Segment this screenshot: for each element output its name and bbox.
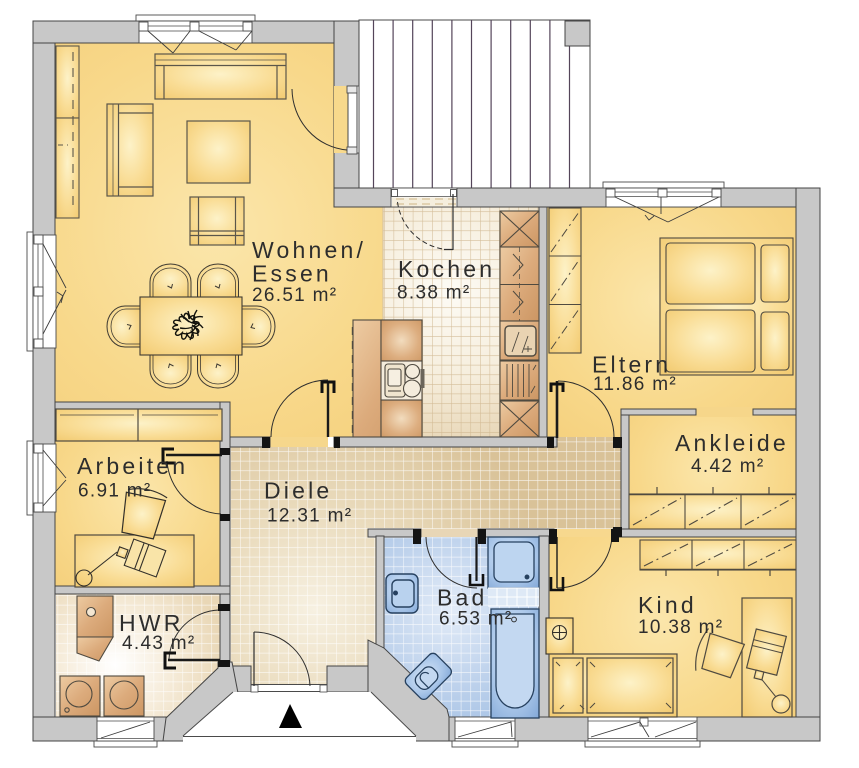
svg-text:Kind: Kind — [638, 592, 697, 618]
svg-text:6.91 m²: 6.91 m² — [78, 481, 152, 502]
svg-text:6.53 m²: 6.53 m² — [439, 609, 513, 630]
svg-text:Essen: Essen — [252, 261, 332, 287]
svg-text:Diele: Diele — [264, 478, 332, 504]
svg-text:12.31 m²: 12.31 m² — [267, 506, 352, 527]
svg-text:Kochen: Kochen — [398, 256, 495, 282]
svg-text:8.38 m²: 8.38 m² — [397, 283, 471, 304]
svg-text:26.51 m²: 26.51 m² — [252, 285, 337, 306]
svg-text:Wohnen/: Wohnen/ — [252, 237, 366, 263]
svg-text:4.43 m²: 4.43 m² — [122, 633, 196, 654]
svg-text:11.86 m²: 11.86 m² — [593, 374, 677, 395]
svg-text:Ankleide: Ankleide — [675, 430, 789, 456]
svg-text:4.42 m²: 4.42 m² — [691, 456, 765, 477]
svg-text:10.38 m²: 10.38 m² — [638, 617, 723, 638]
svg-text:Bad: Bad — [437, 585, 488, 611]
svg-text:Arbeiten: Arbeiten — [77, 453, 188, 479]
